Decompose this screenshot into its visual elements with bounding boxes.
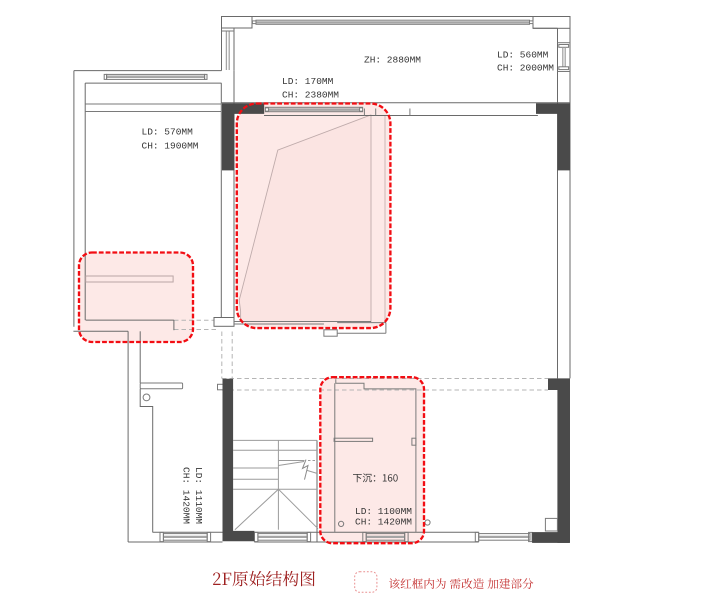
svg-text:LD: 570MM: LD: 570MM [142,127,194,138]
svg-text:CH: 1900MM: CH: 1900MM [142,141,199,152]
svg-text:LD: 1100MM: LD: 1100MM [355,506,412,517]
svg-text:CH: 2380MM: CH: 2380MM [282,90,339,101]
svg-text:ZH: 2880MM: ZH: 2880MM [364,55,421,66]
svg-text:CH: 1420MM: CH: 1420MM [181,467,192,524]
svg-text:CH: 1420MM: CH: 1420MM [355,517,412,528]
svg-text:LD: 1110MM: LD: 1110MM [193,467,204,524]
svg-text:LD: 170MM: LD: 170MM [282,76,334,87]
svg-text:LD: 560MM: LD: 560MM [497,50,549,61]
svg-text:CH: 2000MM: CH: 2000MM [497,63,554,74]
